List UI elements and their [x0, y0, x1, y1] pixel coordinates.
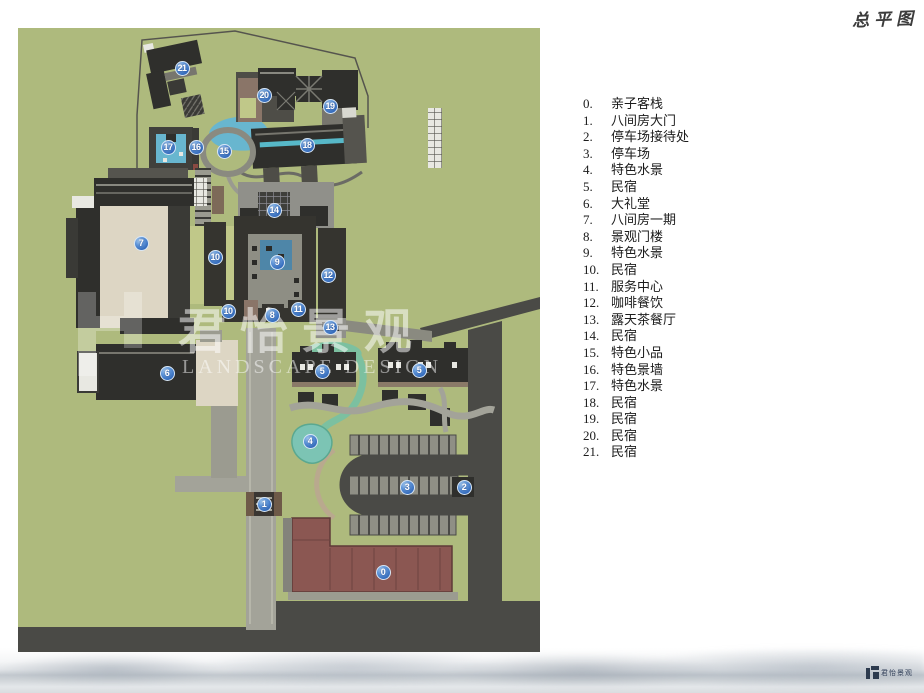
watermark-en: LANDSCAPE DESIGN — [182, 356, 442, 379]
legend-item: 5.民宿 — [583, 179, 689, 196]
legend-item-number: 9. — [583, 245, 611, 262]
legend-item-label: 民宿 — [611, 411, 689, 428]
legend-item-label: 特色水景 — [611, 245, 689, 262]
legend-item: 2.停车场接待处 — [583, 129, 689, 146]
legend-item-number: 1. — [583, 113, 611, 130]
plan-marker-16: 16 — [189, 140, 204, 155]
legend-item-number: 14. — [583, 328, 611, 345]
legend-item-number: 5. — [583, 179, 611, 196]
legend-item: 3.停车场 — [583, 146, 689, 163]
legend-item-label: 露天茶餐厅 — [611, 312, 689, 329]
legend-item-number: 2. — [583, 129, 611, 146]
legend-item-label: 八间房大门 — [611, 113, 689, 130]
plan-title: 总平图 — [852, 4, 924, 31]
legend-item-label: 民宿 — [611, 444, 689, 461]
plan-marker-7: 7 — [134, 236, 149, 251]
legend-item: 12.咖啡餐饮 — [583, 295, 689, 312]
legend-item: 20.民宿 — [583, 428, 689, 445]
legend-item-number: 0. — [583, 96, 611, 113]
legend-item: 7.八间房一期 — [583, 212, 689, 229]
plan-marker-14: 14 — [267, 203, 282, 218]
walkway-grid — [194, 178, 207, 206]
trellis-strip — [428, 108, 442, 168]
legend-item: 16.特色景墙 — [583, 362, 689, 379]
legend-item: 21.民宿 — [583, 444, 689, 461]
plan-marker-5: 5 — [315, 364, 330, 379]
plan-marker-19: 19 — [323, 99, 338, 114]
legend-item: 14.民宿 — [583, 328, 689, 345]
legend-item-label: 特色水景 — [611, 162, 689, 179]
legend-item: 17.特色水景 — [583, 378, 689, 395]
legend-item-label: 停车场接待处 — [611, 129, 689, 146]
legend-item-number: 17. — [583, 378, 611, 395]
plan-marker-1: 1 — [257, 497, 272, 512]
legend-item-number: 13. — [583, 312, 611, 329]
footer-logo-text: 君怡景观 — [881, 668, 913, 678]
legend-item-number: 10. — [583, 262, 611, 279]
plan-marker-21: 21 — [175, 61, 190, 76]
legend-item-label: 民宿 — [611, 395, 689, 412]
plan-marker-6: 6 — [160, 366, 175, 381]
legend-item-label: 八间房一期 — [611, 212, 689, 229]
legend-item-number: 7. — [583, 212, 611, 229]
plan-marker-5: 5 — [412, 363, 427, 378]
legend-item-number: 8. — [583, 229, 611, 246]
legend-item-label: 民宿 — [611, 262, 689, 279]
legend-item-label: 停车场 — [611, 146, 689, 163]
legend-item: 9.特色水景 — [583, 245, 689, 262]
legend-item: 13.露天茶餐厅 — [583, 312, 689, 329]
footer-logo: 君怡景观 — [866, 666, 913, 679]
legend-item-number: 3. — [583, 146, 611, 163]
legend: 0.亲子客栈1.八间房大门2.停车场接待处3.停车场4.特色水景5.民宿6.大礼… — [583, 96, 689, 461]
plan-marker-4: 4 — [303, 434, 318, 449]
plan-marker-8: 8 — [265, 308, 280, 323]
legend-item-label: 服务中心 — [611, 279, 689, 296]
legend-item: 15.特色小品 — [583, 345, 689, 362]
legend-item: 18.民宿 — [583, 395, 689, 412]
plan-marker-0: 0 — [376, 565, 391, 580]
legend-item-number: 12. — [583, 295, 611, 312]
legend-item-label: 大礼堂 — [611, 196, 689, 213]
legend-item: 19.民宿 — [583, 411, 689, 428]
legend-item-number: 18. — [583, 395, 611, 412]
legend-item: 6.大礼堂 — [583, 196, 689, 213]
plan-marker-20: 20 — [257, 88, 272, 103]
legend-item-label: 景观门楼 — [611, 229, 689, 246]
plan-marker-2: 2 — [457, 480, 472, 495]
legend-item-label: 民宿 — [611, 328, 689, 345]
legend-item-number: 19. — [583, 411, 611, 428]
legend-item-label: 特色景墙 — [611, 362, 689, 379]
legend-item-number: 16. — [583, 362, 611, 379]
legend-item-number: 20. — [583, 428, 611, 445]
plan-marker-13: 13 — [323, 320, 338, 335]
plan-marker-18: 18 — [300, 138, 315, 153]
watermark-logo — [76, 290, 144, 383]
plan-marker-10: 10 — [208, 250, 223, 265]
legend-item: 11.服务中心 — [583, 279, 689, 296]
legend-item: 8.景观门楼 — [583, 229, 689, 246]
legend-item: 10.民宿 — [583, 262, 689, 279]
legend-item-number: 6. — [583, 196, 611, 213]
legend-item-label: 特色小品 — [611, 345, 689, 362]
plan-marker-3: 3 — [400, 480, 415, 495]
legend-item: 1.八间房大门 — [583, 113, 689, 130]
legend-item-label: 民宿 — [611, 179, 689, 196]
legend-item: 4.特色水景 — [583, 162, 689, 179]
legend-item-label: 特色水景 — [611, 378, 689, 395]
legend-item-number: 15. — [583, 345, 611, 362]
legend-item-number: 11. — [583, 279, 611, 296]
plan-marker-17: 17 — [161, 140, 176, 155]
legend-item-number: 21. — [583, 444, 611, 461]
legend-item-number: 4. — [583, 162, 611, 179]
plan-marker-12: 12 — [321, 268, 336, 283]
plan-marker-9: 9 — [270, 255, 285, 270]
footer-logo-icon — [866, 666, 879, 679]
legend-item-label: 亲子客栈 — [611, 96, 689, 113]
plan-marker-15: 15 — [217, 144, 232, 159]
legend-item: 0.亲子客栈 — [583, 96, 689, 113]
plan-marker-10: 10 — [221, 304, 236, 319]
legend-item-label: 民宿 — [611, 428, 689, 445]
legend-item-label: 咖啡餐饮 — [611, 295, 689, 312]
plan-marker-11: 11 — [291, 302, 306, 317]
